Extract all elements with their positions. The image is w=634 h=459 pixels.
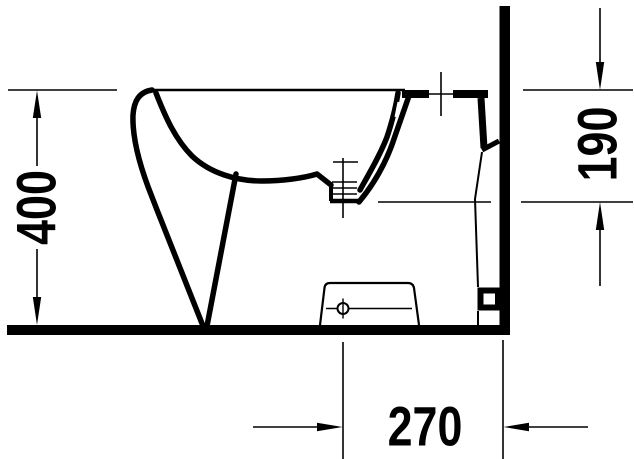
arrow-down-icon bbox=[33, 297, 41, 325]
floor-line bbox=[7, 325, 510, 335]
back-outline bbox=[475, 152, 482, 287]
bidet-technical-drawing: 400 190 270 bbox=[0, 0, 634, 459]
drain-trap-hatch bbox=[332, 182, 357, 194]
wall-fixing-bracket bbox=[481, 291, 499, 308]
dimension-outlet-to-wall: 270 bbox=[253, 340, 588, 459]
foot-outline bbox=[320, 283, 419, 325]
dimension-label-outlet-to-wall: 270 bbox=[388, 395, 463, 458]
arrow-down-icon bbox=[596, 62, 604, 90]
dimension-label-rim-to-outlet: 190 bbox=[566, 107, 629, 182]
arrow-right-icon bbox=[317, 423, 343, 431]
arrow-up-icon bbox=[596, 202, 604, 230]
dimension-overall-height: 400 bbox=[5, 90, 117, 325]
wall-line bbox=[500, 6, 511, 335]
drain-crosshair-icon bbox=[338, 299, 349, 319]
arrow-left-icon bbox=[504, 423, 530, 431]
drawing-sheet: 400 190 270 bbox=[0, 0, 634, 459]
pocket-left-edge bbox=[481, 98, 484, 148]
room bbox=[7, 6, 510, 335]
dimension-label-height: 400 bbox=[5, 170, 68, 245]
inner-bowl-line bbox=[156, 93, 331, 185]
tap-hole-centerline bbox=[429, 72, 454, 116]
rear-mounting-pocket bbox=[481, 98, 499, 150]
front-leg-back-line bbox=[207, 174, 236, 326]
bidet-outline bbox=[133, 72, 499, 326]
arrow-up-icon bbox=[33, 91, 41, 119]
